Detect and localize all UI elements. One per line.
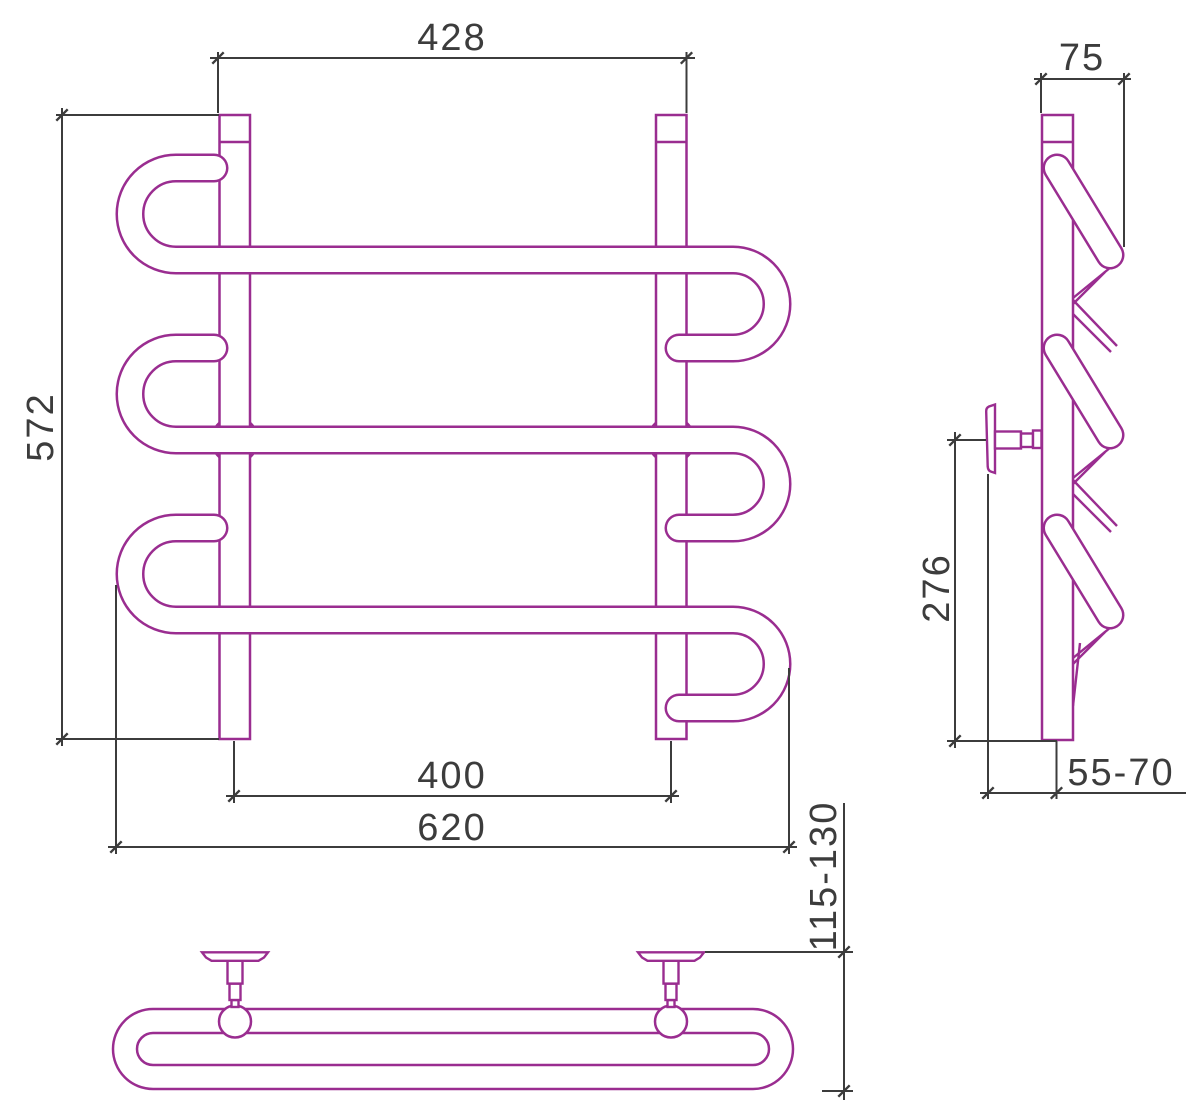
- rail-end-left: [219, 1006, 251, 1038]
- dim-428: [210, 52, 695, 113]
- dim-276: [947, 432, 1057, 748]
- bracket-flange-top: [202, 952, 268, 961]
- rail-end-right: [655, 1006, 687, 1038]
- dim-400-label: 400: [417, 755, 486, 797]
- dim-55-70-label: 55-70: [1067, 752, 1174, 794]
- side-view: [986, 115, 1117, 740]
- far-tube-lines: [1070, 263, 1117, 706]
- dim-620-label: 620: [417, 807, 486, 849]
- dim-115-130-label: 115-130: [803, 801, 845, 952]
- bracket-stem-side: [995, 432, 1021, 449]
- technical-drawing-canvas: 428 572 400 620 115-130 75 276 55-70: [0, 0, 1200, 1112]
- wall-bracket-top-left: [202, 952, 268, 1007]
- bracket-flange-top: [638, 952, 704, 961]
- wall-bracket-top-right: [638, 952, 704, 1007]
- bracket-flange-side: [986, 405, 995, 474]
- dim-276-label: 276: [916, 553, 958, 622]
- dim-428-label: 428: [417, 17, 486, 59]
- bracket-neck-side: [1021, 434, 1033, 448]
- bracket-stem-top: [664, 961, 679, 984]
- wall-bracket-side: [986, 405, 1041, 474]
- front-view: [130, 115, 777, 739]
- dim-572-label: 572: [20, 392, 62, 461]
- bracket-band-top: [666, 984, 677, 1000]
- bracket-collar-side: [1033, 431, 1042, 449]
- dim-55-70: [980, 474, 1186, 799]
- top-view: [113, 952, 793, 1089]
- bracket-stem-top: [228, 961, 243, 984]
- dim-75-label: 75: [1059, 37, 1105, 79]
- bracket-band-top: [230, 984, 241, 1000]
